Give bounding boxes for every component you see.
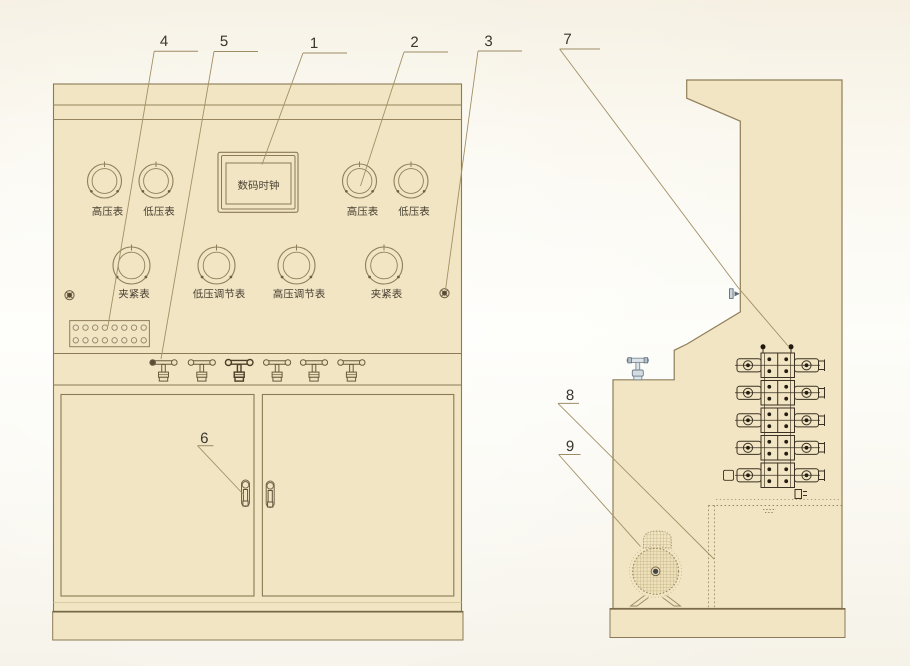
svg-text:夹紧表: 夹紧表	[371, 289, 403, 301]
svg-text:6: 6	[200, 430, 208, 447]
svg-text:1: 1	[310, 35, 318, 52]
svg-text:高压调节表: 高压调节表	[273, 289, 326, 301]
svg-text:高压表: 高压表	[92, 206, 124, 218]
svg-text:低压表: 低压表	[143, 206, 175, 218]
svg-text:数码时钟: 数码时钟	[238, 180, 280, 192]
svg-text:低压表: 低压表	[398, 206, 430, 218]
svg-text:夹紧表: 夹紧表	[118, 289, 150, 301]
svg-text:5: 5	[220, 33, 228, 50]
svg-text:2: 2	[410, 34, 418, 51]
svg-text:高压表: 高压表	[347, 206, 379, 218]
svg-text:7: 7	[563, 31, 571, 48]
svg-text:4: 4	[160, 33, 168, 50]
svg-text:8: 8	[566, 387, 574, 404]
svg-text:3: 3	[484, 33, 492, 50]
svg-text:9: 9	[566, 438, 574, 455]
svg-text:低压调节表: 低压调节表	[193, 289, 246, 301]
